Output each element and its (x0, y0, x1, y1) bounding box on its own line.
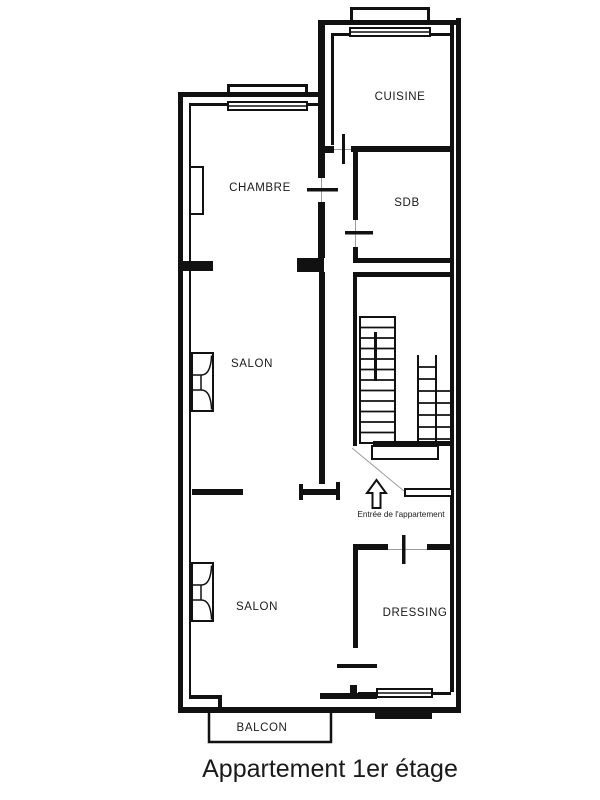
room-label-dressing: DRESSING (383, 607, 448, 619)
floor-plan-drawing: CHAMBRE CUISINE SDB SALON SALON DRESSING… (0, 0, 600, 800)
room-label-salon-lower: SALON (236, 601, 278, 613)
room-label-balcon: BALCON (237, 722, 288, 734)
entrance-right-wall (405, 489, 452, 496)
floor-plan-page: CHAMBRE CUISINE SDB SALON SALON DRESSING… (0, 0, 600, 800)
fireplace-salon-upper (192, 353, 213, 411)
door-sdb (345, 220, 373, 247)
window-bottom (377, 689, 432, 697)
page-title: Appartement 1er étage (202, 755, 458, 783)
stair-landing (372, 446, 438, 459)
room-label-chambre: CHAMBRE (229, 182, 291, 194)
entrance-arrow-icon (367, 480, 386, 508)
room-labels: CHAMBRE CUISINE SDB SALON SALON DRESSING… (229, 91, 447, 734)
door-chambre (307, 178, 338, 202)
closet-chambre (190, 167, 203, 214)
window-cuisine (350, 28, 430, 36)
room-label-salon-upper: SALON (231, 358, 273, 370)
fireplace-salon-lower (192, 563, 213, 621)
staircase (360, 317, 450, 459)
entrance-label: Entrée de l'appartement (357, 510, 445, 519)
door-dressing (388, 535, 427, 564)
window-chambre (228, 102, 307, 110)
room-label-cuisine: CUISINE (375, 91, 426, 103)
door-cuisine (334, 134, 351, 164)
room-label-sdb: SDB (394, 197, 419, 209)
